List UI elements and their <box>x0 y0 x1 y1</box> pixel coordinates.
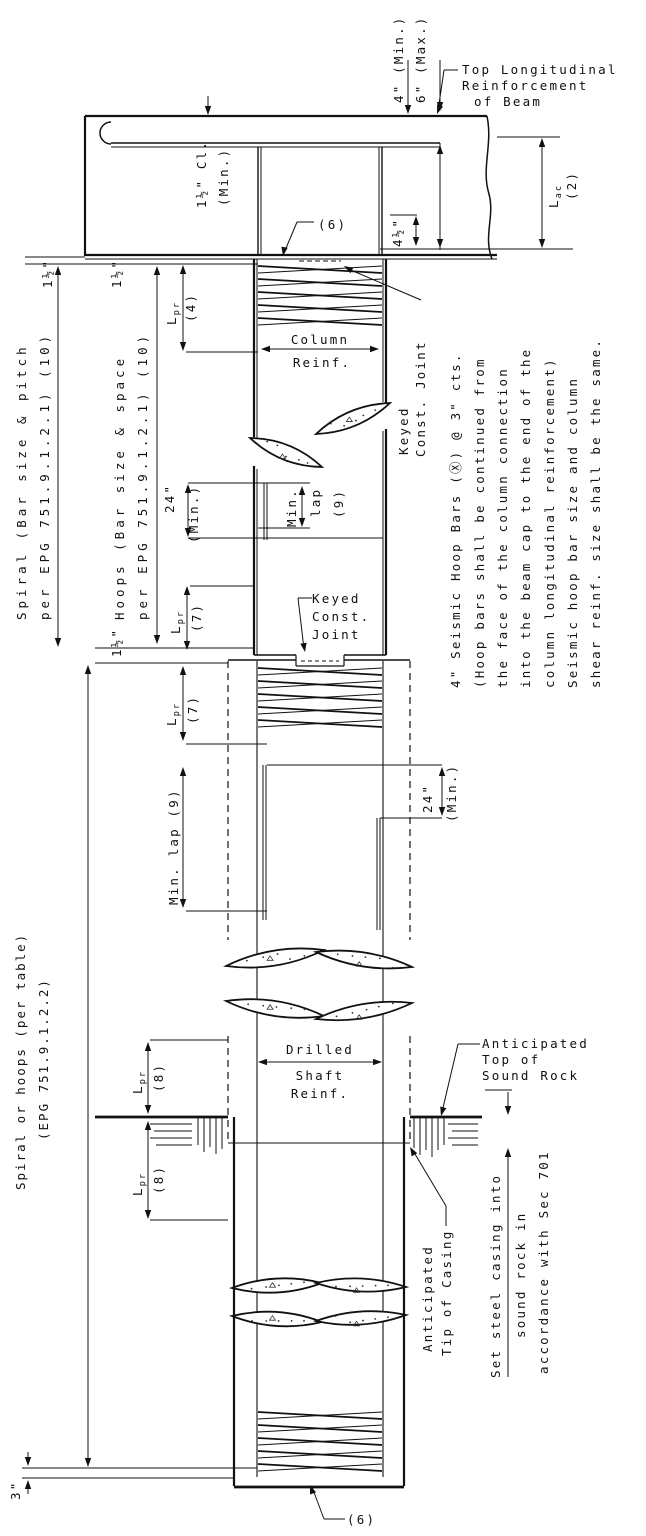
label-shaft-min_lap: Min. lap (9) <box>166 788 181 905</box>
arrowhead <box>437 239 443 248</box>
stipple-dot <box>278 1320 280 1322</box>
stipple-dot <box>277 953 279 955</box>
arrowhead <box>300 643 306 652</box>
bar-hook <box>100 122 111 144</box>
arrowhead <box>180 342 186 351</box>
label-column-lap_24_qual: (Min.) <box>186 485 201 543</box>
stipple-dot <box>276 445 278 447</box>
label-main: L <box>164 716 179 726</box>
arrowhead <box>440 1106 446 1116</box>
stipple-dot <box>278 1285 280 1287</box>
stipple-dot <box>349 1285 351 1287</box>
label-column-reinf_label-0: Column <box>291 332 349 347</box>
arrowhead <box>145 1105 151 1114</box>
arrowhead <box>184 641 190 650</box>
break-symbol-leaf <box>316 951 412 969</box>
break-symbol-leaf <box>226 999 324 1018</box>
label-shaft-lap_24: 24" <box>420 784 435 813</box>
stipple-dot <box>266 441 268 443</box>
stipple-dot <box>262 1005 264 1007</box>
break-symbol-leaf <box>316 1278 406 1291</box>
stipple-dot <box>303 1320 305 1322</box>
stipple-dot <box>366 1009 368 1011</box>
drawing-page: 4" (Min.)6" (Max.)1½" Cl.(Min.)Lac(2)4½"… <box>0 0 646 1536</box>
stipple-dot <box>251 1320 253 1322</box>
label-joints-keyed_horizontal-0: Keyed <box>312 591 361 606</box>
label-shaft-spiral_note-1: (EPG 751.9.1.2.2) <box>36 978 51 1140</box>
arrowhead <box>25 1480 31 1489</box>
stipple-dot <box>262 956 264 958</box>
label-beam-hook_ext: 4½" <box>390 218 405 247</box>
label-joints-keyed_vertical-1: Const. Joint <box>413 340 428 457</box>
label-joints-keyed_horizontal-2: Joint <box>312 627 361 642</box>
arrowhead <box>258 1059 267 1065</box>
stipple-dot <box>387 1316 389 1318</box>
stipple-dot <box>392 1003 394 1005</box>
label-column-min_lap-0: Min. <box>284 488 299 527</box>
stipple-dot <box>251 1288 253 1290</box>
label-beam-top_reinforcement_label-2: of Beam <box>474 94 542 109</box>
label-subscript: ac <box>554 184 564 199</box>
drawing-canvas: 4" (Min.)6" (Max.)1½" Cl.(Min.)Lac(2)4½"… <box>0 0 646 1536</box>
stipple-dot <box>304 955 306 957</box>
arrowhead <box>180 732 186 741</box>
break-symbol-leaf <box>316 1002 412 1020</box>
line <box>412 1149 446 1206</box>
stipple-dot <box>387 1284 389 1286</box>
arrowhead <box>55 266 61 275</box>
arrowhead <box>205 106 211 115</box>
label-shaft-bottom_gap: 3" <box>8 1481 23 1500</box>
line <box>298 598 304 649</box>
label-column-spiral_note-0: Spiral (Bar size & pitch <box>14 343 29 620</box>
arrowhead <box>180 666 186 675</box>
stipple-dot <box>285 456 287 458</box>
stipple-dot <box>375 1285 377 1287</box>
stipple-dot <box>303 1281 305 1283</box>
break-symbol-leaf <box>250 438 322 467</box>
arrowhead <box>413 237 419 246</box>
stipple-dot <box>265 1320 267 1322</box>
stipple-dot <box>265 1286 267 1288</box>
label-shaft-reinf_label-1: Shaft <box>296 1068 345 1083</box>
stipple-dot <box>275 1006 277 1008</box>
arrowhead <box>25 1457 31 1466</box>
stipple-dot <box>355 420 357 422</box>
arrowhead <box>410 1147 417 1156</box>
label-column-lpr7_ref: (7) <box>189 603 204 632</box>
keyed-joint-mask <box>296 654 344 666</box>
arrowhead <box>145 1042 151 1051</box>
label-column-lpr_sym: Lpr <box>164 702 182 726</box>
beam-break-line <box>486 116 492 259</box>
label-beam-cover: 1½" Cl. <box>194 140 209 208</box>
label-rock-casing_note-1: sound rock in <box>513 1212 528 1338</box>
arrowhead <box>85 1458 91 1467</box>
stipple-dot <box>379 957 381 959</box>
label-column-spiral_note-1: per EPG 751.9.1.2.1) (10) <box>37 332 52 620</box>
label-beam-cover_qual: (Min.) <box>216 148 231 206</box>
label-column-reinf_label-1: Reinf. <box>293 355 351 370</box>
arrowhead <box>437 104 443 114</box>
label-main: L <box>130 1186 145 1196</box>
arrowhead <box>539 239 545 248</box>
arrowhead <box>180 767 186 776</box>
label-shaft-lpr8_ref: (8) <box>151 1063 166 1092</box>
stipple-dot <box>352 955 354 957</box>
arrowhead <box>184 586 190 595</box>
stipple-dot <box>349 1321 351 1323</box>
label-beam-anchorage_ref: (2) <box>564 171 579 200</box>
label-column-min_lap-2: (9) <box>331 489 346 518</box>
stipple-dot <box>362 1320 364 1322</box>
line <box>442 1044 458 1112</box>
label-shaft-reinf_label-2: Reinf. <box>291 1086 349 1101</box>
label-rock-casing_note-2: accordance with Sec 701 <box>536 1150 551 1374</box>
stipple-dot <box>307 462 309 464</box>
label-main: L <box>546 198 561 208</box>
label-beam-hook_clearance_max: 6" (Max.) <box>413 15 428 103</box>
label-column-lpr_sym: Lpr <box>130 1172 148 1196</box>
label-rock-tip_label-0: Anticipated <box>420 1245 435 1352</box>
label-joints-keyed_vertical-0: Keyed <box>396 406 411 455</box>
stipple-dot <box>374 409 376 411</box>
label-shaft-lpr7_ref: (7) <box>185 695 200 724</box>
label-column-hoops_note-1: per EPG 751.9.1.2.1) (10) <box>135 332 150 620</box>
label-notes-seismic-3: into the beam cap to the end of the <box>518 348 533 688</box>
label-shaft-reinf_label-0: Drilled <box>286 1042 354 1057</box>
arrowhead <box>55 638 61 647</box>
arrowhead <box>180 265 186 274</box>
stipple-dot <box>247 1003 249 1005</box>
label-notes-seismic-1: (Hoop bars shall be continued from <box>472 357 487 688</box>
stipple-dot <box>374 1318 376 1320</box>
arrowhead <box>413 216 419 225</box>
label-notes-seismic-5: Seismic hoop bar size and column <box>565 377 580 688</box>
label-subscript: pr <box>176 610 186 625</box>
label-main: L <box>130 1084 145 1094</box>
label-main: L <box>168 624 183 634</box>
arrowhead <box>154 266 160 275</box>
label-column-lap_24: 24" <box>162 484 177 513</box>
label-shaft-spiral_note-0: Spiral or hoops (per table) <box>13 933 28 1190</box>
label-rock-top_label-2: Sound Rock <box>482 1068 579 1083</box>
arrowhead <box>261 346 270 352</box>
stipple-dot <box>336 1015 338 1017</box>
label-subscript: pr <box>138 1172 148 1187</box>
stipple-dot <box>335 1286 337 1288</box>
stipple-dot <box>289 958 291 960</box>
stipple-dot <box>337 954 339 956</box>
label-shaft-lap_24_qual: (Min.) <box>444 764 459 822</box>
arrowhead <box>145 1121 151 1130</box>
stipple-dot <box>330 423 332 425</box>
stipple-dot <box>290 1283 292 1285</box>
label-column-lpr4_ref: (4) <box>183 293 198 322</box>
arrowhead <box>505 1148 511 1157</box>
label-column-gap_top_spiral: 1½" <box>40 259 55 288</box>
label-notes-seismic-6: shear reinf. size shall be the same. <box>588 338 603 688</box>
keyed-joint <box>296 654 344 666</box>
stipple-dot <box>304 1009 306 1011</box>
arrowhead <box>370 346 379 352</box>
arrowhead <box>299 486 305 495</box>
label-beam-top_reinforcement_label-0: Top Longitudinal <box>462 62 618 77</box>
stipple-dot <box>362 414 364 416</box>
label-shaft-spiral_callout: (6) <box>347 1512 376 1527</box>
label-main: L <box>164 315 179 325</box>
drawing-labels: 4" (Min.)6" (Max.)1½" Cl.(Min.)Lac(2)4½"… <box>8 15 618 1527</box>
break-symbol-leaf <box>232 1312 322 1327</box>
break-symbol-leaf <box>232 1278 322 1292</box>
arrowhead <box>539 138 545 147</box>
label-rock-casing_note-0: Set steel casing into <box>488 1174 503 1378</box>
break-symbol-leaf <box>316 1311 406 1325</box>
stipple-dot <box>378 1006 380 1008</box>
label-column-min_lap-1: lap <box>308 488 323 517</box>
label-notes-seismic-2: the face of the column connection <box>495 367 510 688</box>
arrowhead <box>145 1210 151 1219</box>
label-column-hoops_note-0: Hoops (Bar size & space <box>112 355 127 620</box>
label-column-lpr_sym: Lpr <box>130 1070 148 1094</box>
label-column-lpr_sym: Lpr <box>164 301 182 325</box>
label-subscript: pr <box>172 702 182 717</box>
label-column-lpr_sym: Lpr <box>168 610 186 634</box>
arrowhead <box>373 1059 382 1065</box>
stipple-dot <box>290 1007 292 1009</box>
arrowhead <box>437 145 443 154</box>
stipple-dot <box>298 459 300 461</box>
label-beam-hook_clearance_min: 4" (Min.) <box>391 15 406 103</box>
stipple-dot <box>352 1012 354 1014</box>
label-beam-top_reinforcement_label-1: Reinforcement <box>462 78 588 93</box>
stipple-dot <box>362 1285 364 1287</box>
stipple-dot <box>364 956 366 958</box>
break-symbol-leaf <box>316 403 390 434</box>
arrowhead <box>154 635 160 644</box>
label-joints-keyed_horizontal-1: Const. <box>312 609 370 624</box>
stipple-dot <box>335 1315 337 1317</box>
break-symbol-leaf <box>226 948 324 967</box>
label-shaft-lpr8_ref: (8) <box>151 1165 166 1194</box>
label-notes-seismic-4: column longitudinal reinforcement) <box>542 357 557 688</box>
label-notes-seismic-0: 4" Seismic Hoop Bars (Ⓧ) @ 3" cts. <box>448 352 463 688</box>
label-rock-top_label-1: Top of <box>482 1052 540 1067</box>
stipple-dot <box>343 425 345 427</box>
label-beam-spiral_callout: (6) <box>318 217 347 232</box>
stipple-dot <box>392 967 394 969</box>
stipple-dot <box>246 960 248 962</box>
label-subscript: pr <box>138 1070 148 1085</box>
label-column-gap_joint: 1½" <box>109 628 124 657</box>
label-column-gap_top_hoops: 1½" <box>109 259 124 288</box>
arrowhead <box>85 665 91 674</box>
label-rock-top_label-0: Anticipated <box>482 1036 589 1051</box>
label-rock-tip_label-1: Tip of Casing <box>439 1230 454 1356</box>
label-subscript: pr <box>172 301 182 316</box>
stipple-dot <box>291 1320 293 1322</box>
arrowhead <box>405 105 411 114</box>
arrowhead <box>299 518 305 527</box>
arrowhead <box>505 1106 511 1115</box>
label-beam-anchorage_sym: Lac <box>546 184 564 208</box>
